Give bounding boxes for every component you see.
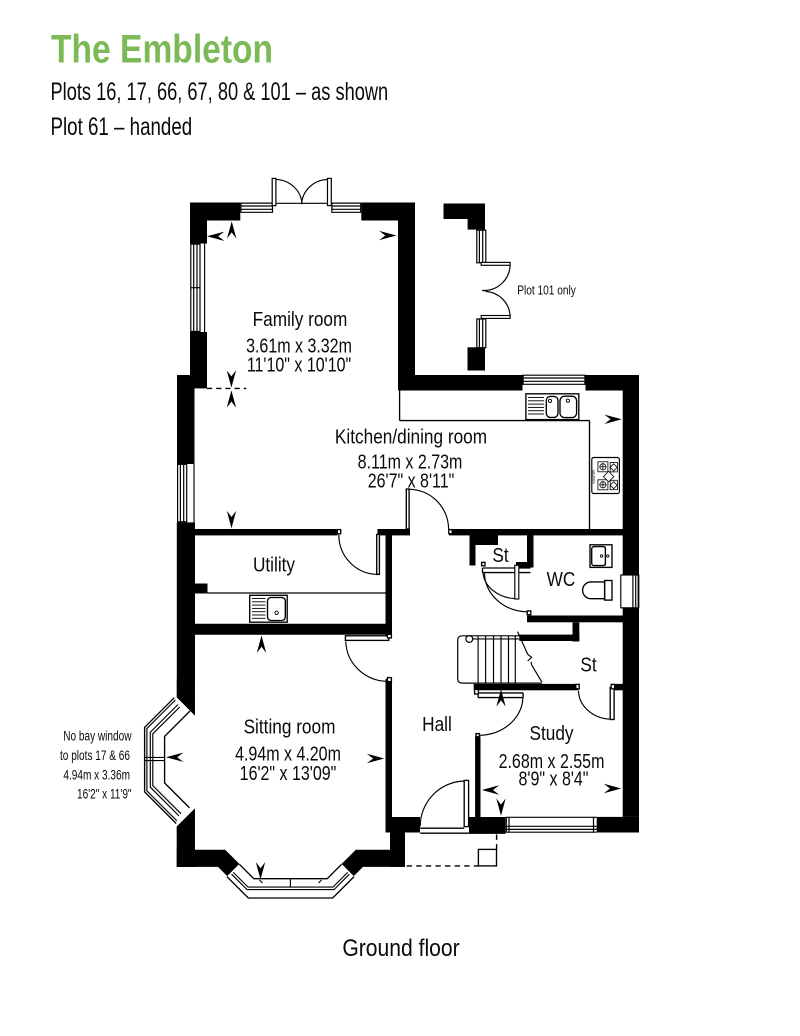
svg-text:26'7" x 8'11": 26'7" x 8'11" (368, 470, 455, 492)
svg-text:Study: Study (529, 723, 574, 746)
svg-text:Utility: Utility (253, 554, 296, 577)
svg-text:to plots 17 & 66: to plots 17 & 66 (60, 747, 130, 763)
svg-text:Plot 101 only: Plot 101 only (517, 283, 576, 297)
svg-text:Family room: Family room (253, 309, 348, 332)
svg-text:600mm: 600mm (591, 469, 596, 483)
svg-text:WC: WC (547, 569, 576, 592)
svg-text:16'2" x 13'09": 16'2" x 13'09" (240, 762, 337, 784)
svg-text:St: St (492, 545, 509, 568)
svg-text:16'2" x 11'9": 16'2" x 11'9" (77, 786, 131, 802)
svg-text:11'10" x 10'10": 11'10" x 10'10" (247, 354, 351, 376)
svg-text:Kitchen/dining room: Kitchen/dining room (335, 426, 487, 449)
svg-text:Hall: Hall (422, 714, 452, 737)
svg-text:No bay window: No bay window (63, 728, 131, 744)
svg-text:Plot 61 – handed: Plot 61 – handed (51, 112, 193, 140)
svg-text:Ground floor: Ground floor (342, 935, 460, 962)
svg-text:Plots 16, 17, 66, 67, 80 & 101: Plots 16, 17, 66, 67, 80 & 101 – as show… (51, 77, 389, 106)
svg-text:Sitting room: Sitting room (244, 716, 336, 739)
svg-text:The Embleton: The Embleton (51, 27, 273, 71)
svg-text:4.94m x 3.36m: 4.94m x 3.36m (63, 767, 130, 783)
svg-text:St: St (580, 654, 597, 677)
svg-text:8'9" x 8'4": 8'9" x 8'4" (519, 768, 589, 790)
